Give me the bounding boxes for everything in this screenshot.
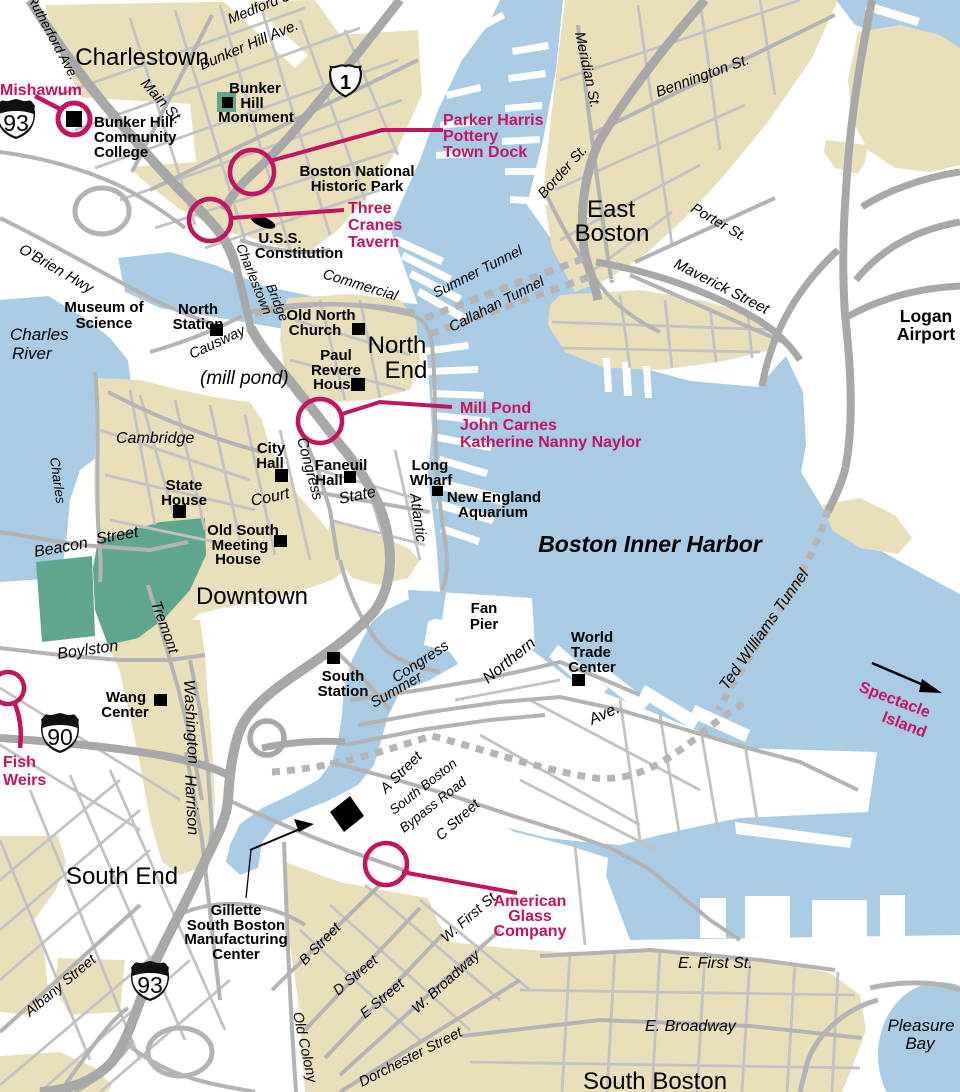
svg-text:Hall: Hall — [256, 455, 284, 472]
svg-text:93: 93 — [3, 110, 29, 136]
svg-text:Center: Center — [212, 946, 260, 963]
svg-text:Mill Pond: Mill Pond — [460, 400, 531, 417]
svg-text:Bay: Bay — [905, 1034, 936, 1053]
svg-text:Center: Center — [568, 659, 616, 676]
svg-text:Fan: Fan — [471, 600, 498, 617]
svg-text:1: 1 — [340, 72, 351, 94]
svg-text:Station: Station — [318, 683, 369, 700]
svg-text:Weirs: Weirs — [3, 772, 46, 789]
svg-text:Airport: Airport — [897, 324, 956, 344]
svg-text:Pottery: Pottery — [443, 128, 498, 145]
svg-text:Charlestown: Charlestown — [75, 44, 208, 71]
svg-text:End: End — [385, 357, 428, 384]
svg-text:College: College — [94, 144, 148, 161]
svg-text:House: House — [313, 376, 359, 393]
svg-text:Mishawum: Mishawum — [0, 82, 82, 99]
svg-text:Constitution: Constitution — [255, 245, 343, 262]
svg-text:Katherine Nanny Naylor: Katherine Nanny Naylor — [460, 434, 641, 451]
svg-text:E. First St.: E. First St. — [678, 955, 753, 972]
svg-text:Three: Three — [348, 200, 392, 217]
svg-text:Wharf: Wharf — [410, 472, 454, 489]
svg-text:Cambridge: Cambridge — [116, 430, 194, 447]
svg-text:Historic Park: Historic Park — [311, 178, 404, 195]
svg-text:Station: Station — [173, 316, 224, 333]
svg-text:Town Dock: Town Dock — [443, 144, 527, 161]
svg-text:Harrison: Harrison — [181, 774, 201, 835]
svg-text:Parker Harris: Parker Harris — [443, 112, 544, 129]
svg-text:E. Broadway: E. Broadway — [645, 1018, 737, 1035]
svg-text:Charles: Charles — [10, 325, 69, 344]
svg-text:Fish: Fish — [3, 754, 36, 771]
svg-text:River: River — [12, 344, 53, 363]
svg-text:Downtown: Downtown — [196, 583, 308, 610]
svg-text:North: North — [368, 332, 427, 359]
svg-text:Cranes: Cranes — [348, 217, 402, 234]
svg-text:South End: South End — [66, 863, 178, 890]
svg-text:Tavern: Tavern — [348, 234, 399, 251]
svg-text:House: House — [161, 492, 207, 509]
svg-text:East: East — [587, 196, 635, 223]
svg-text:Logan: Logan — [900, 306, 953, 326]
svg-text:Church: Church — [289, 322, 342, 339]
svg-text:Boston: Boston — [575, 220, 650, 247]
svg-text:Museum of: Museum of — [64, 299, 144, 316]
svg-text:Science: Science — [76, 315, 133, 332]
svg-text:House: House — [215, 551, 261, 568]
svg-text:Boston Inner Harbor: Boston Inner Harbor — [538, 531, 763, 557]
svg-text:Center: Center — [101, 704, 149, 721]
svg-text:Company: Company — [494, 923, 567, 940]
svg-text:Pier: Pier — [470, 616, 499, 633]
svg-text:Aquarium: Aquarium — [458, 504, 528, 521]
svg-text:(mill pond): (mill pond) — [200, 368, 289, 389]
svg-text:John Carnes: John Carnes — [460, 417, 557, 434]
svg-text:Pleasure: Pleasure — [887, 1016, 954, 1035]
svg-text:90: 90 — [47, 724, 73, 750]
svg-text:South Boston: South Boston — [583, 1068, 727, 1092]
svg-text:93: 93 — [137, 972, 163, 998]
svg-text:Monument: Monument — [218, 109, 294, 126]
